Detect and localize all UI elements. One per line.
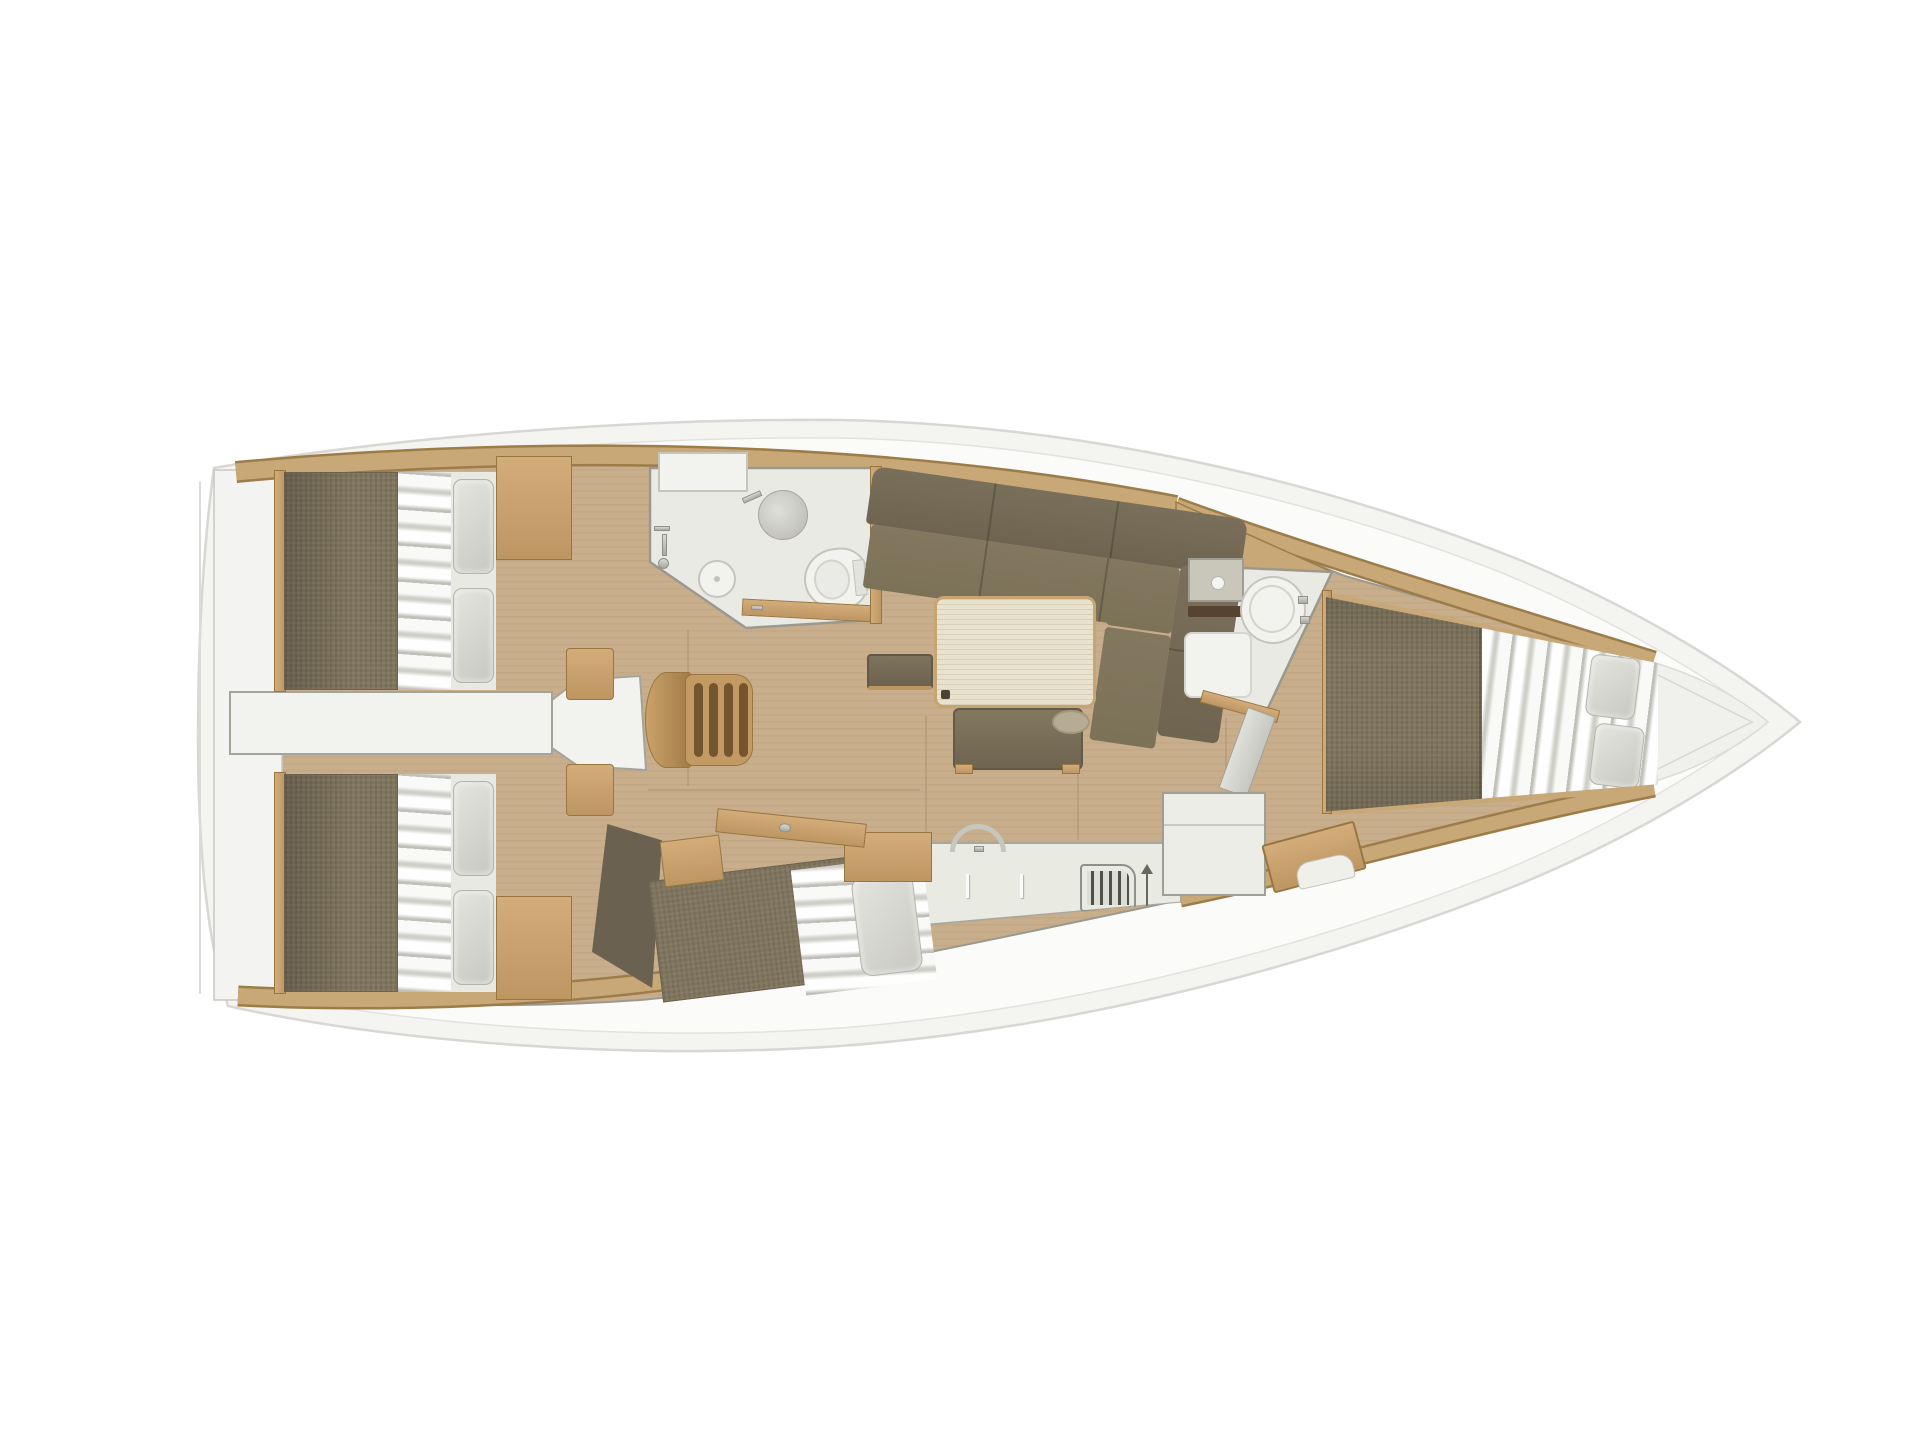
pillow — [453, 781, 494, 877]
floor-hatch — [1052, 710, 1090, 734]
port-head-vanity — [658, 452, 748, 492]
table-corner-fitting — [941, 690, 950, 699]
stairs-treads — [685, 674, 753, 766]
refrigerator-cabinet — [1162, 792, 1266, 896]
aft-port-step — [566, 648, 614, 700]
starboard-head-shower-pan — [1184, 632, 1252, 698]
engine-vent-grill — [1080, 864, 1136, 912]
salon-stool — [867, 654, 933, 690]
toilet-hinge — [1298, 596, 1308, 604]
aft-port-cabinet — [496, 456, 572, 560]
pillow — [1585, 654, 1642, 721]
aft-port-pillow-zone — [451, 472, 496, 690]
port-head-faucet — [654, 526, 670, 531]
cushion-seam — [977, 541, 988, 605]
toilet-seat — [812, 558, 852, 602]
port-head-sink — [698, 560, 736, 598]
aft-starboard-step — [566, 764, 614, 816]
aft-starboard-cabinet — [496, 896, 572, 1000]
starboard-head-sink-counter — [1188, 558, 1244, 602]
bench-foot — [1062, 764, 1080, 774]
bench-foot — [955, 764, 973, 774]
single-berth-side-cabinet — [659, 835, 724, 888]
aft-starboard-mattress — [284, 774, 398, 992]
stair-tread-gap — [739, 683, 748, 757]
galley-door-handle — [1020, 874, 1023, 898]
companionway-stairs — [645, 670, 753, 770]
pillow — [1588, 722, 1645, 789]
stair-tread-gap — [694, 683, 703, 757]
door-handle — [751, 605, 763, 611]
aft-port-berth — [284, 472, 496, 690]
stair-tread-gap — [724, 683, 733, 757]
shower-head — [758, 490, 808, 540]
galley-faucet-base — [974, 846, 984, 852]
port-head-faucet-knob — [658, 558, 669, 569]
pillow — [850, 871, 924, 978]
port-head-faucet-hose — [662, 534, 667, 556]
cabinet-seam — [1164, 824, 1264, 826]
pillow — [453, 588, 494, 684]
pillow — [453, 479, 494, 575]
sink-basin — [1211, 576, 1225, 590]
arrow-head — [1141, 864, 1153, 874]
toilet-hinge — [1300, 616, 1310, 624]
aft-starboard-duvet — [398, 774, 451, 992]
cushion-seam — [986, 483, 996, 541]
sink-drain — [714, 576, 720, 582]
aft-port-mattress — [284, 472, 398, 690]
cushion-seam — [1109, 501, 1119, 559]
aft-starboard-pillow-zone — [451, 774, 496, 992]
aft-port-duvet — [398, 472, 451, 690]
toilet-seat — [1249, 585, 1295, 633]
galley-door-handle — [966, 874, 969, 898]
aft-corridor — [230, 692, 552, 754]
stair-tread-gap — [709, 683, 718, 757]
pillow — [453, 890, 494, 986]
door-handle — [779, 823, 792, 833]
sofa-corner-seat — [1106, 559, 1181, 634]
aft-starboard-berth — [284, 774, 496, 992]
floor-plan-image — [0, 0, 1920, 1440]
salon-table — [934, 596, 1096, 708]
